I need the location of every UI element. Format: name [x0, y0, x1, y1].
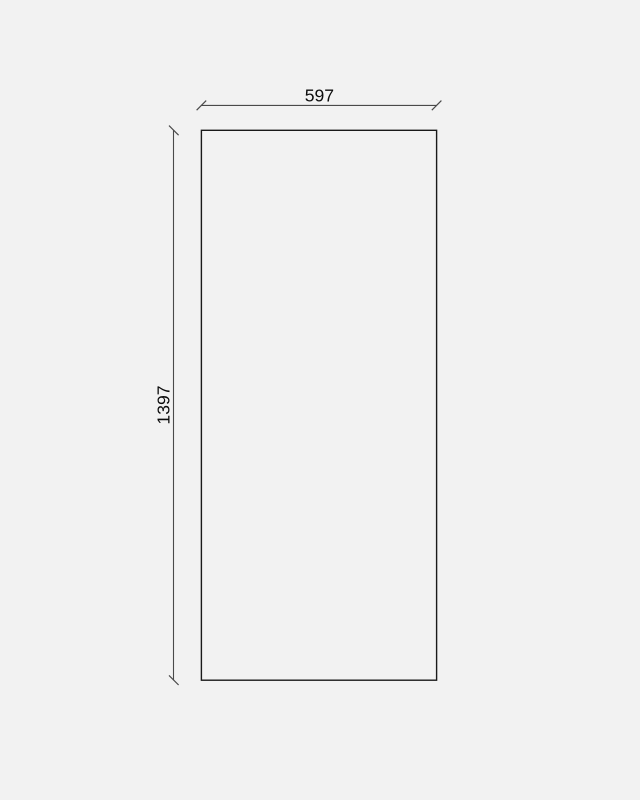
svg-text:1397: 1397 [154, 385, 174, 424]
svg-text:597: 597 [305, 85, 334, 105]
